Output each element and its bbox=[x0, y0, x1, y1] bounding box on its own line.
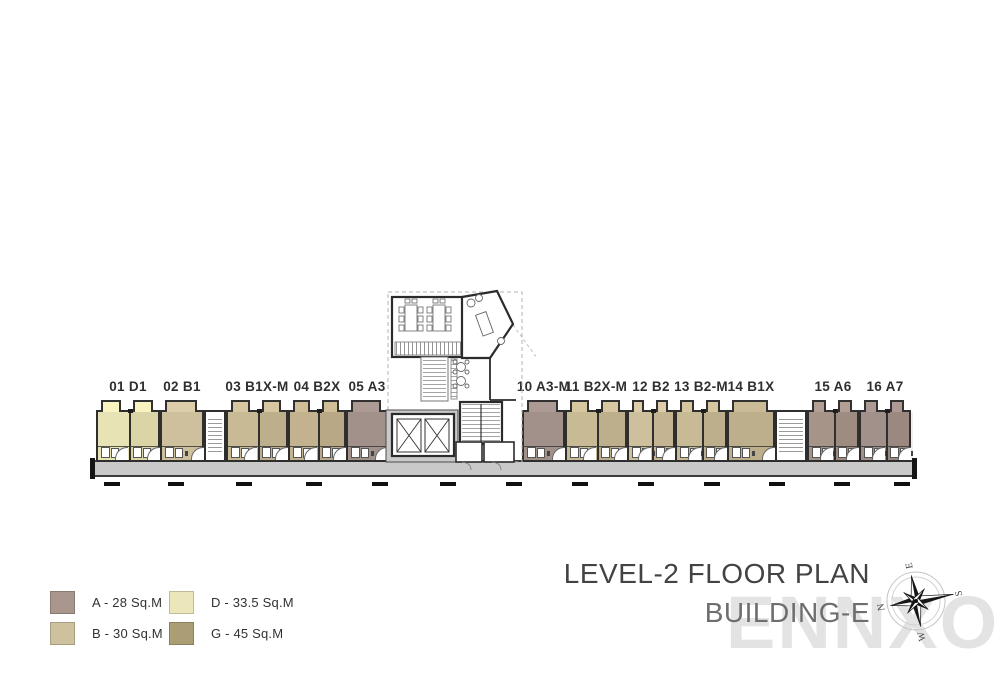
title-block: LEVEL-2 FLOOR PLAN BUILDING-E bbox=[564, 558, 870, 629]
legend-item-g: G - 45 Sq.M bbox=[169, 622, 283, 645]
legend-swatch-a bbox=[50, 591, 75, 614]
service-rooms bbox=[456, 442, 514, 470]
lounge-seats bbox=[453, 360, 469, 388]
legend-swatch-g bbox=[169, 622, 194, 645]
elevator-bank bbox=[392, 414, 454, 456]
core-meeting-room bbox=[392, 297, 464, 357]
core-stair-right bbox=[460, 402, 502, 444]
legend-label-b: B - 30 Sq.M bbox=[92, 626, 163, 641]
core-angled-room bbox=[462, 291, 513, 358]
page-title: LEVEL-2 FLOOR PLAN bbox=[564, 558, 870, 590]
legend-item-d: D - 33.5 Sq.M bbox=[169, 591, 294, 614]
legend-label-a: A - 28 Sq.M bbox=[92, 595, 162, 610]
legend-label-d: D - 33.5 Sq.M bbox=[211, 595, 294, 610]
legend-item-b: B - 30 Sq.M bbox=[50, 622, 163, 645]
window-mullions bbox=[395, 342, 461, 355]
floor-plan-page: ENNXO 01 D102 B103 B1X-M04 B2X05 A310 A3… bbox=[0, 0, 1000, 690]
legend-item-a: A - 28 Sq.M bbox=[50, 591, 162, 614]
core-dashed-diagonal bbox=[513, 325, 537, 358]
core-stairs bbox=[421, 357, 457, 401]
legend-label-g: G - 45 Sq.M bbox=[211, 626, 283, 641]
core-walls bbox=[490, 358, 516, 400]
legend-swatch-b bbox=[50, 622, 75, 645]
central-core bbox=[386, 291, 537, 470]
legend-swatch-d bbox=[169, 591, 194, 614]
building-subtitle: BUILDING-E bbox=[564, 597, 870, 629]
